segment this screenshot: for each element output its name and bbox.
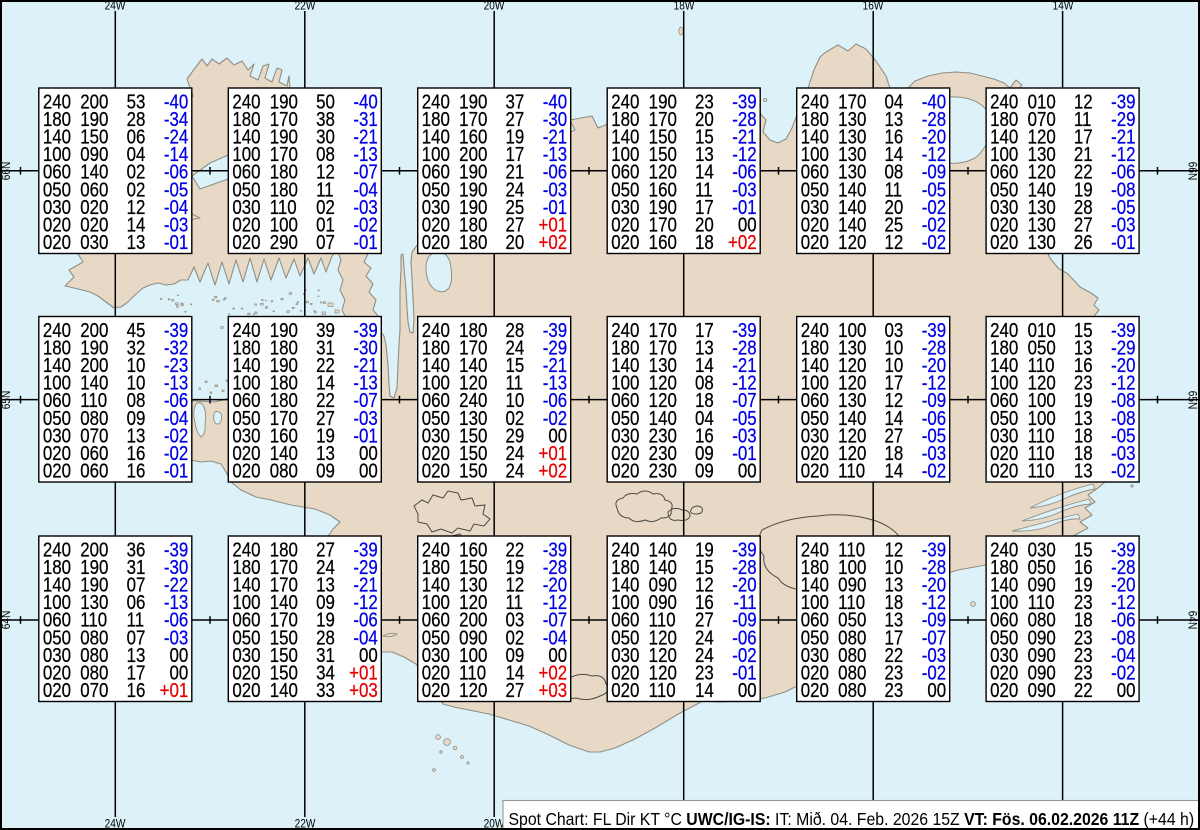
svg-text:64N: 64N xyxy=(1185,611,1198,629)
svg-text:65N: 65N xyxy=(1185,391,1198,409)
svg-text:65N: 65N xyxy=(0,391,13,409)
svg-text:64N: 64N xyxy=(0,611,13,629)
svg-text:66N: 66N xyxy=(0,162,13,180)
svg-text:Spot Chart: FL Dir KT °C UWC/I: Spot Chart: FL Dir KT °C UWC/IG-IS: IT: … xyxy=(509,809,1195,829)
svg-text:66N: 66N xyxy=(1185,162,1198,180)
